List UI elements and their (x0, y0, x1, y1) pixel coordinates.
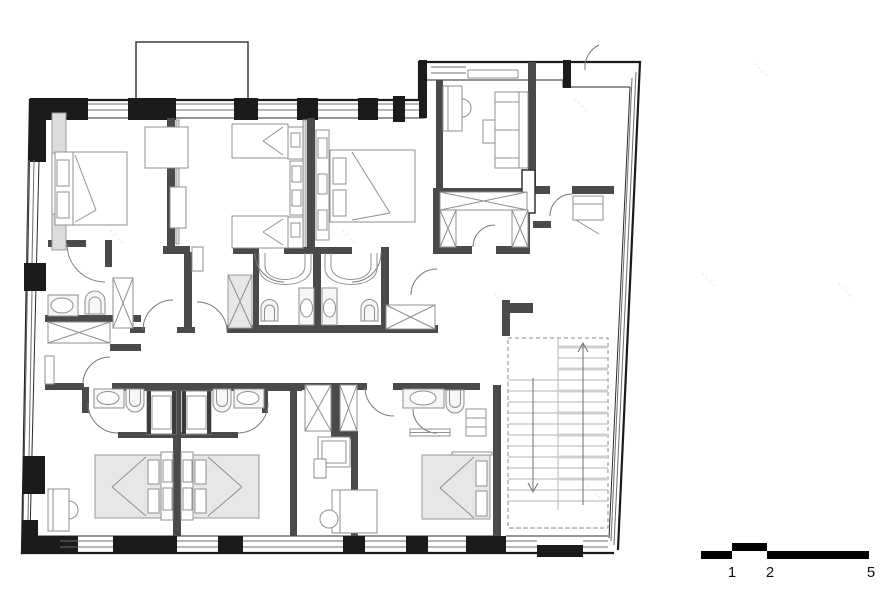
sink (94, 389, 124, 408)
shelf-unit (181, 452, 193, 520)
shower (147, 391, 176, 434)
wardrobe-x (305, 385, 331, 431)
desk (48, 489, 78, 531)
toilet (85, 291, 105, 314)
window (88, 104, 128, 110)
window (243, 541, 343, 547)
stairs (508, 338, 608, 528)
scale-bar: 1 2 5 (701, 543, 875, 581)
toilet (126, 389, 144, 412)
toilet (261, 300, 278, 322)
single-bed (232, 124, 303, 159)
window (405, 104, 419, 110)
door-arc (197, 302, 227, 332)
door-arc (365, 387, 394, 416)
svg-text:▪▪▪▪: ▪▪▪▪ (835, 279, 857, 301)
door-arc (473, 225, 495, 247)
scale-label-5: 5 (867, 564, 875, 581)
wardrobe-x (228, 275, 252, 328)
door-arc (143, 300, 173, 330)
door-arc (411, 269, 437, 295)
door-arc (67, 244, 105, 282)
double-bed (55, 152, 127, 225)
toilet (361, 300, 378, 322)
window (258, 104, 297, 110)
bench (410, 429, 450, 436)
window (176, 104, 234, 110)
chair (69, 501, 78, 519)
window (506, 541, 537, 547)
radiator (468, 70, 518, 78)
sofa (495, 92, 528, 168)
shelf-unit (161, 452, 173, 520)
chair (462, 99, 471, 117)
svg-text:▪▪▪▪: ▪▪▪▪ (571, 94, 593, 116)
sink (234, 389, 264, 408)
shower (182, 391, 211, 434)
wardrobe-x (340, 385, 357, 431)
cabinet (145, 127, 188, 228)
single-bed (232, 216, 303, 248)
sink (403, 389, 444, 408)
wardrobe-x (386, 305, 435, 329)
double-bed (95, 455, 161, 518)
window (365, 541, 406, 547)
sink (322, 288, 337, 325)
wardrobe-x (440, 210, 456, 247)
shower (325, 253, 377, 285)
shelf-unit (290, 161, 303, 215)
wardrobe-x (48, 322, 110, 343)
wardrobe-x (113, 278, 133, 328)
svg-text:▪▪▪▪: ▪▪▪▪ (339, 226, 361, 248)
sink (48, 295, 78, 316)
desk (314, 437, 350, 478)
wardrobe-x (440, 192, 527, 210)
toilet (213, 389, 231, 412)
window (318, 104, 358, 110)
window (431, 67, 466, 73)
floor-plan: ▪▪▪▪ ▪▪▪▪ ▪▪▪▪ ▪▪▪▪ ▪▪▪▪ ▪▪▪▪ ▪▪▪▪ ▪▪▪▪ … (0, 0, 880, 591)
shelf-unit (316, 130, 329, 240)
double-bed (422, 455, 490, 519)
furniture (45, 70, 603, 533)
sink (299, 288, 314, 325)
desk (320, 490, 377, 533)
door-arc (585, 45, 599, 70)
cabinet (573, 196, 603, 234)
window (177, 541, 218, 547)
scale-label-2: 2 (766, 564, 774, 581)
shower (259, 253, 311, 285)
svg-text:▪▪▪▪: ▪▪▪▪ (751, 59, 773, 81)
door-arc (550, 194, 572, 216)
duct (192, 247, 203, 271)
door-arc (83, 357, 110, 384)
window (428, 541, 466, 547)
double-bed (193, 455, 259, 518)
desk (443, 86, 471, 131)
window (378, 104, 393, 110)
svg-text:▪▪▪▪: ▪▪▪▪ (584, 481, 606, 503)
svg-text:▪▪▪▪: ▪▪▪▪ (699, 269, 721, 291)
scale-label-1: 1 (728, 564, 736, 581)
window (583, 541, 608, 547)
shelf-unit (452, 452, 492, 455)
wardrobe-x (512, 210, 528, 247)
chair (320, 510, 338, 528)
closet (466, 409, 486, 436)
double-bed (330, 150, 415, 222)
balcony (136, 42, 248, 100)
radiator (45, 356, 54, 384)
toilet (446, 390, 464, 413)
